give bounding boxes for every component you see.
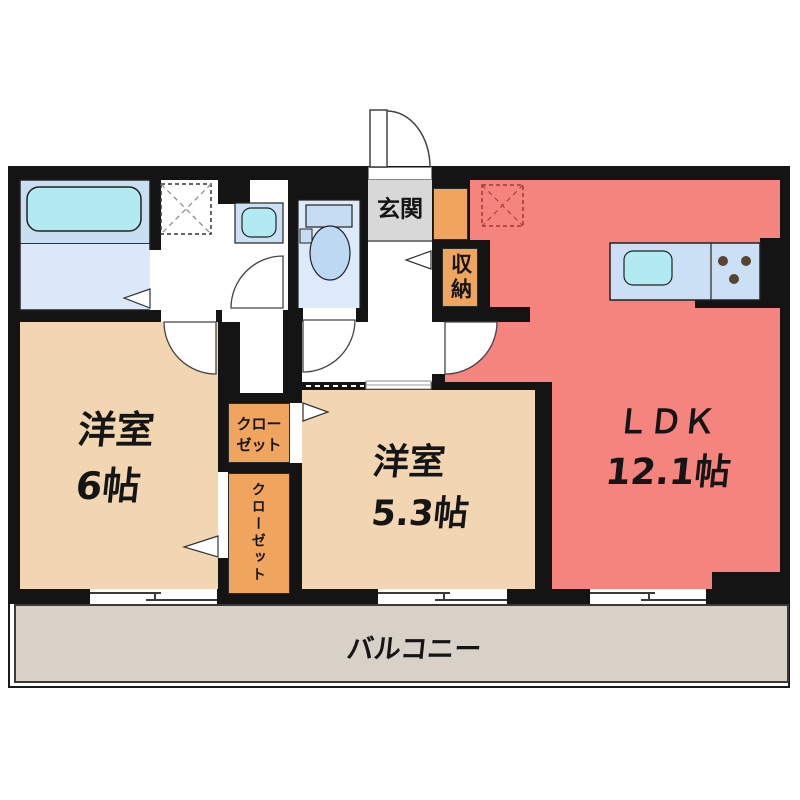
balcony-label: バルコニー [345,635,483,665]
closet-upper-label-line2: ゼット [236,435,281,456]
toilet-flush-icon [300,229,312,243]
bathtub-icon [27,187,141,231]
refrigerator-cross [482,185,523,226]
bedroom1-door-swing [164,322,216,374]
stove-burner-icon [729,274,739,284]
stove-burner-icon [718,256,728,266]
floor-plan: 洋室 6帖 洋室 5.3帖 ＬＤＫ 12.1帖 玄関 収納 クロー ゼット クロ… [0,0,800,800]
storage-door-arrow-icon [406,251,431,269]
bathroom-door-arrow-icon [124,289,150,308]
ldk-door-swing [445,322,497,374]
closet-upper-door-arrow-icon [303,403,328,421]
entrance-label: 玄関 [377,197,423,222]
ldk-name-label: ＬＤＫ [615,404,718,440]
closet-upper-label-line1: クロー [236,414,281,435]
entrance-door-swing [387,111,430,167]
storage-label: 収納 [448,253,471,303]
bedroom2-size-label: 5.3帖 [369,495,470,534]
stove-burner-icon [741,256,751,266]
vanity-basin-icon [242,208,276,237]
bedroom1-size-label: 6帖 [74,466,143,508]
closet-lower-label: クローゼット [249,482,264,584]
toilet-bowl-icon [310,226,350,280]
closet-upper-label: クロー ゼット [236,414,281,456]
closet-lower-door-arrow-icon [184,536,218,557]
bedroom1-name-label: 洋室 [76,410,156,452]
kitchen-sink-icon [624,251,672,285]
toilet-tank-icon [306,205,352,227]
bedroom2-name-label: 洋室 [371,443,447,483]
washroom-door-swing [231,256,283,308]
fixtures-overlay [0,0,800,800]
entrance-door-leaf [370,110,387,167]
toilet-door-swing [303,320,355,372]
ldk-size-label: 12.1帖 [604,453,733,493]
